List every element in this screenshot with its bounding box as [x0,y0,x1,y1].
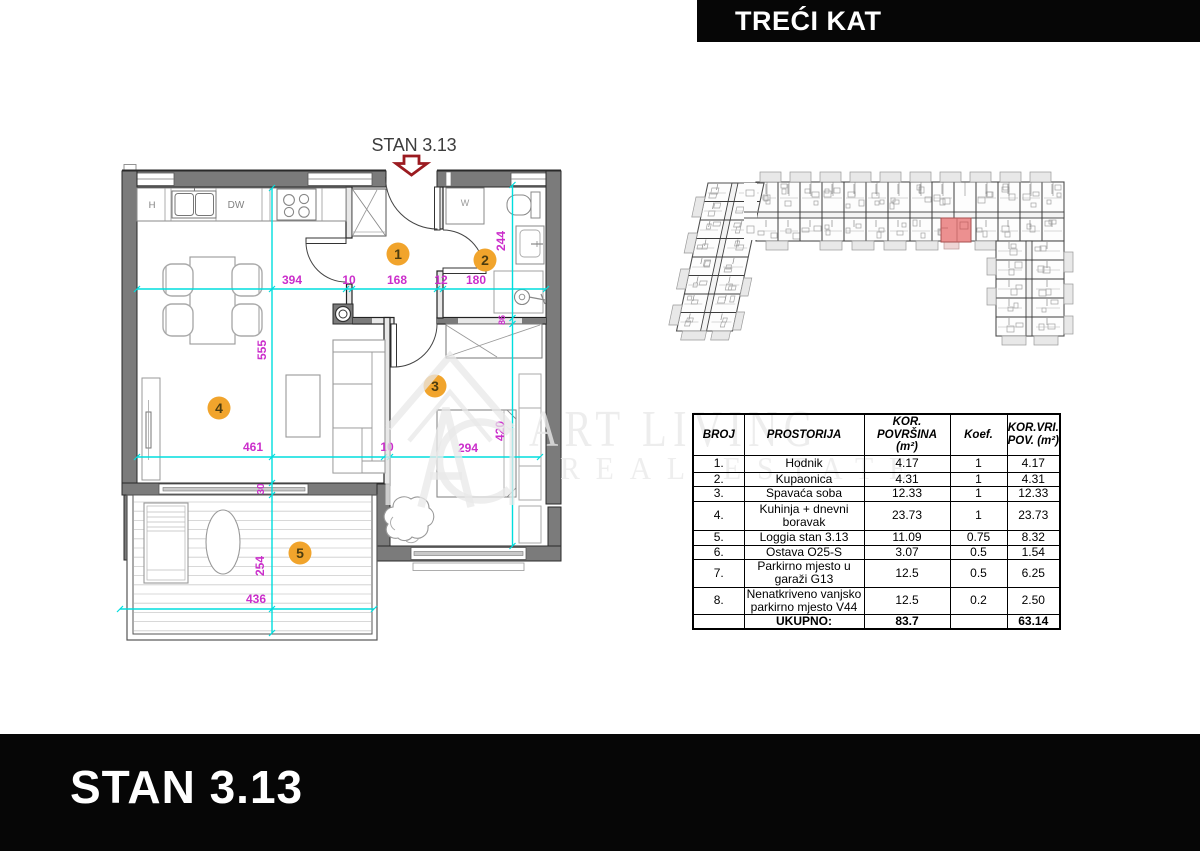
svg-text:5: 5 [296,545,304,561]
svg-text:394: 394 [282,273,302,287]
svg-text:STAN 3.13: STAN 3.13 [372,135,457,155]
svg-text:244: 244 [494,231,508,251]
svg-text:254: 254 [253,556,267,576]
svg-text:2: 2 [481,252,489,268]
svg-text:30: 30 [256,483,267,495]
svg-text:H: H [149,200,156,211]
svg-text:86: 86 [497,315,507,325]
svg-text:4: 4 [215,400,223,416]
svg-text:1: 1 [394,246,402,262]
svg-text:W: W [461,198,470,208]
svg-text:DW: DW [228,200,245,211]
svg-text:12: 12 [434,273,448,287]
svg-text:461: 461 [243,440,263,454]
svg-text:168: 168 [387,273,407,287]
svg-text:555: 555 [255,340,269,360]
svg-text:180: 180 [466,273,486,287]
svg-text:436: 436 [246,592,266,606]
svg-text:10: 10 [342,273,356,287]
